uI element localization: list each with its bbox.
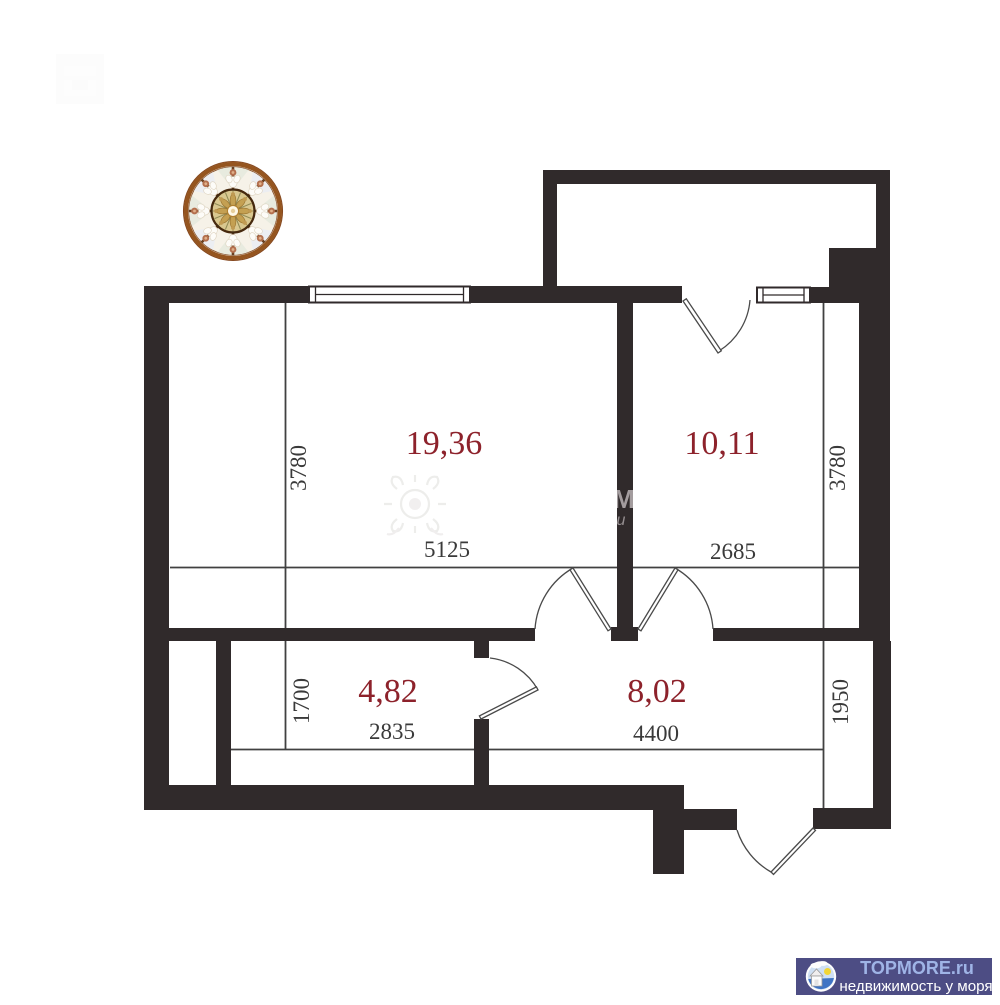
svg-text:8,02: 8,02 [627, 673, 687, 710]
svg-text:2685: 2685 [710, 539, 756, 564]
svg-text:10,11: 10,11 [684, 425, 759, 462]
svg-text:4400: 4400 [633, 721, 679, 746]
svg-text:5125: 5125 [424, 537, 470, 562]
svg-text:недвижимость у моря: недвижимость у моря [839, 978, 992, 995]
svg-text:4,82: 4,82 [358, 673, 418, 710]
svg-text:и: и [617, 512, 626, 529]
svg-text:TOPMORE.ru: TOPMORE.ru [860, 958, 974, 978]
svg-text:2835: 2835 [369, 719, 415, 744]
svg-text:3780: 3780 [825, 445, 850, 491]
svg-text:3780: 3780 [286, 445, 311, 491]
svg-text:1950: 1950 [828, 679, 853, 725]
svg-text:1700: 1700 [289, 678, 314, 724]
svg-text:19,36: 19,36 [406, 425, 483, 462]
